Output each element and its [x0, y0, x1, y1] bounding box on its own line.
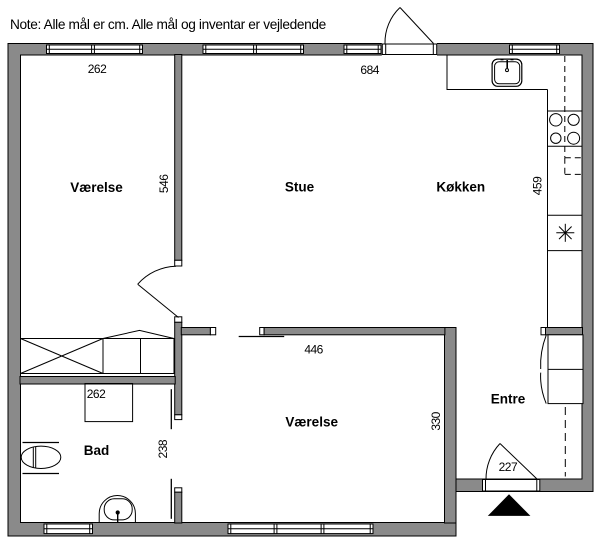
svg-text:Note: Alle mål er cm. Alle mål: Note: Alle mål er cm. Alle mål og invent…	[10, 17, 326, 32]
svg-text:262: 262	[88, 62, 107, 76]
svg-text:Værelse: Værelse	[285, 415, 338, 430]
svg-text:546: 546	[157, 174, 171, 193]
svg-text:330: 330	[429, 411, 443, 430]
svg-text:459: 459	[530, 176, 544, 195]
svg-text:Køkken: Køkken	[436, 180, 485, 195]
svg-text:Stue: Stue	[285, 180, 315, 195]
svg-text:238: 238	[156, 439, 170, 458]
svg-text:446: 446	[304, 343, 323, 357]
svg-text:684: 684	[360, 63, 379, 77]
svg-text:Værelse: Værelse	[70, 180, 123, 195]
svg-text:227: 227	[499, 460, 518, 474]
svg-text:Bad: Bad	[84, 443, 110, 458]
svg-text:262: 262	[87, 387, 106, 401]
svg-text:Entre: Entre	[491, 392, 526, 407]
